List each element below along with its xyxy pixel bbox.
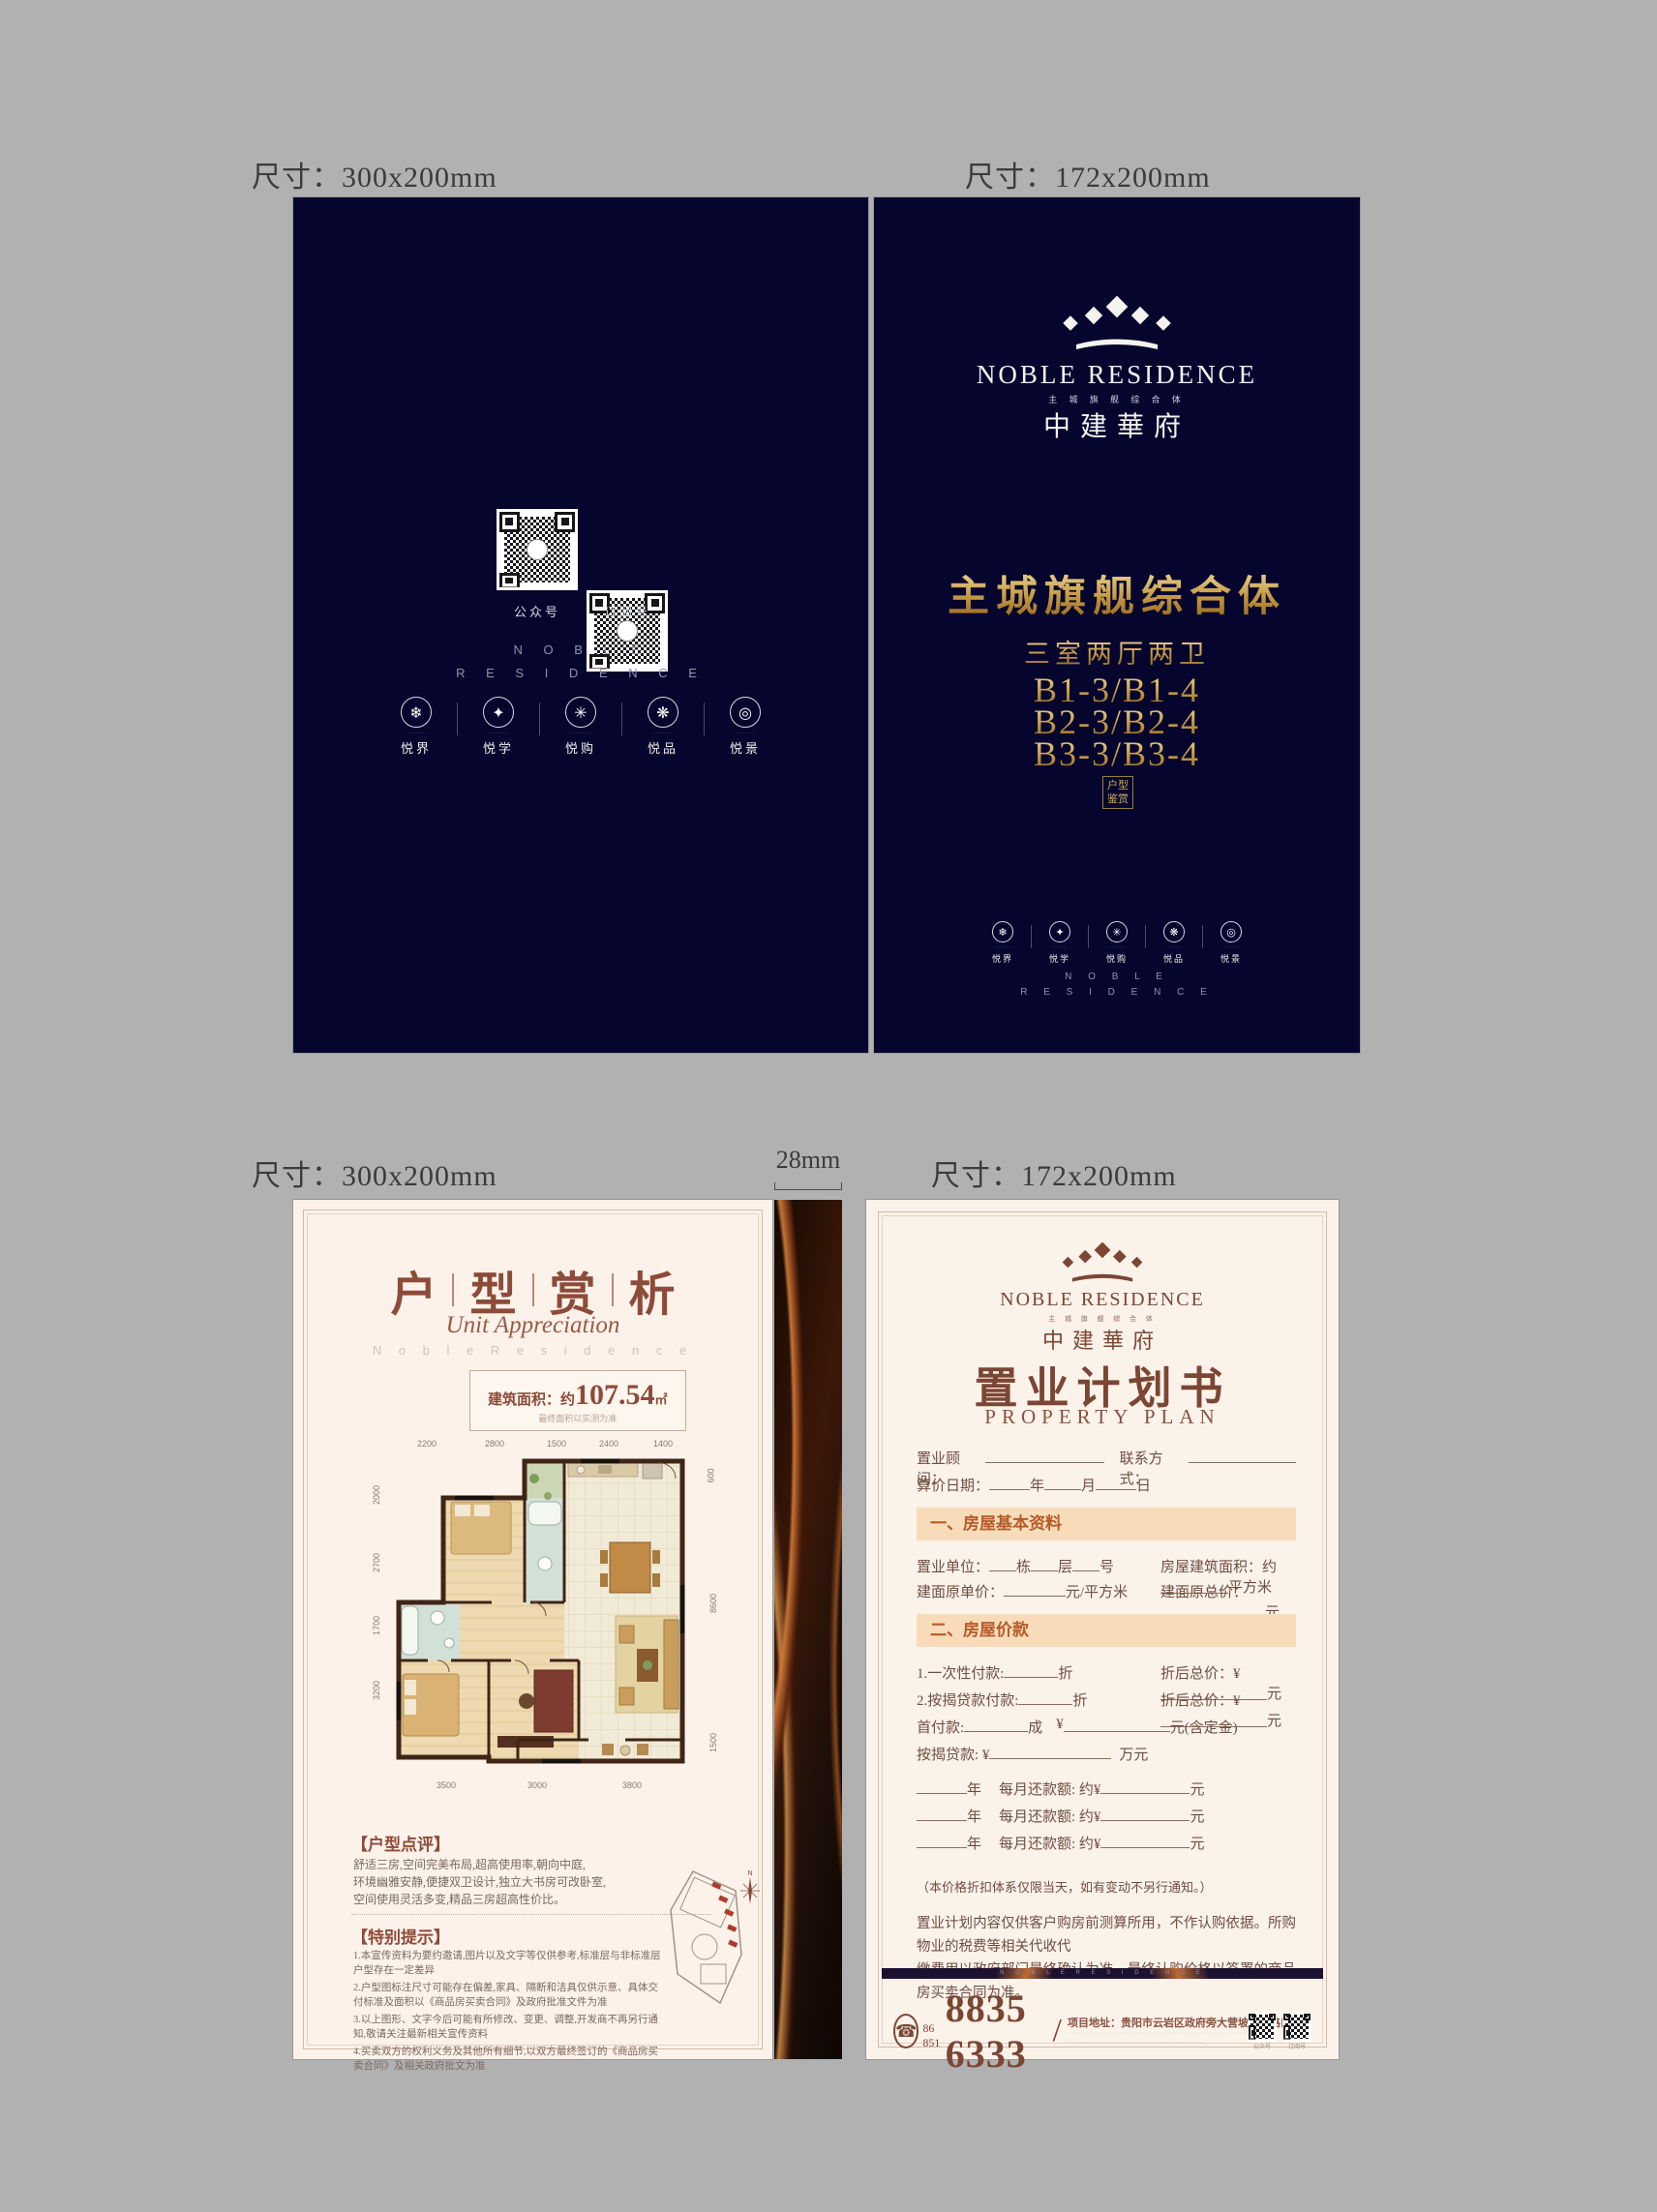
- subscription-qr-code: [1282, 2013, 1311, 2042]
- amenity-caption: ·············: [1052, 946, 1067, 950]
- blank: [989, 1744, 1111, 1759]
- floorplan-page: 户型赏析 Unit Appreciation N o b l e R e s i…: [293, 1200, 772, 2059]
- amenity-label: 悦购: [1106, 952, 1128, 965]
- amenity-caption: ·············: [1223, 946, 1238, 950]
- amenity-world-icon: ❄: [401, 697, 432, 728]
- dong-unit: 栋: [1016, 1556, 1031, 1576]
- dim-label: 3000: [527, 1780, 547, 1790]
- amenity-label: 悦购: [565, 738, 596, 757]
- amenities-row: ❄ ············· 悦界 ✦ ············· 悦学 ✳ …: [293, 697, 868, 757]
- dim-label: 2400: [599, 1439, 618, 1449]
- brand-spaced-line2: R E S I D E N C E: [874, 987, 1360, 998]
- form-row-price: 建面原单价：元/平方米 建面原总价：元: [917, 1581, 1296, 1601]
- amenity-item: ✦ ············· 悦学: [458, 697, 539, 757]
- price-note: （本价格折扣体系仅限当天，如有变动不另行通知。）: [917, 1877, 1213, 1896]
- unit-price-label: 建面原单价：: [917, 1581, 1004, 1601]
- dim-label: 3200: [372, 1681, 381, 1700]
- amenity-learn-icon: ✦: [483, 697, 514, 728]
- year-unit: 年: [967, 1779, 981, 1799]
- footer-brand-band: N O B L E R E S I D E N C E: [882, 1968, 1323, 1979]
- amenity-label: 悦界: [401, 738, 432, 757]
- blank: [1018, 1689, 1072, 1705]
- dim-label: 2000: [372, 1485, 381, 1505]
- slash: /: [1053, 2013, 1062, 2049]
- ceng-unit: 层: [1058, 1556, 1072, 1576]
- project-address: 项目地址：贵阳市云岩区政府旁大营坡常青路口: [1068, 2015, 1240, 2030]
- form-row-pay2: 2.按揭贷款付款:折 折后总价：¥元: [917, 1689, 1296, 1710]
- mortgage-pay-label: 2.按揭贷款付款:: [917, 1689, 1018, 1710]
- divider: [532, 1273, 534, 1306]
- qr-finder-icon: [1283, 2014, 1290, 2020]
- brand-spaced-line1: N O B L E: [874, 971, 1360, 982]
- monthly-repay-label: 每月还款额: 约¥: [999, 1779, 1100, 1799]
- form-row-monthly-1: 年 每月还款额: 约¥元: [917, 1779, 1296, 1799]
- amenity-view-icon: ◎: [1220, 921, 1242, 942]
- blank: [1031, 1556, 1058, 1571]
- amenity-caption: ·············: [571, 732, 589, 736]
- loan-label: 按揭贷款: ¥: [917, 1744, 989, 1764]
- cover-subhead: 三室两厅两卫: [874, 633, 1360, 671]
- qr-finder-icon: [1304, 2014, 1311, 2020]
- review-line: 空间使用灵活多变,精品三房超高性价比。: [353, 1891, 673, 1908]
- spine-dimension-line: [774, 1182, 842, 1190]
- form-row-monthly-3: 年 每月还款额: 约¥元: [917, 1833, 1296, 1853]
- amenity-label: 悦景: [1220, 952, 1242, 965]
- yuan-unit: 元: [1190, 1833, 1204, 1853]
- blank: [1100, 1779, 1190, 1794]
- area-note: 最终面积以实测为准: [488, 1412, 668, 1424]
- stamp-row: 户型: [1105, 779, 1130, 792]
- amenity-learn-icon: ✦: [1049, 921, 1070, 942]
- wan-unit: 万元: [1119, 1744, 1148, 1764]
- cover-headline: 主城旗舰综合体: [874, 563, 1360, 623]
- wechat-official-qr-code: [1248, 2013, 1277, 2042]
- amenity-caption: ·············: [1109, 946, 1124, 950]
- blank: [1100, 1833, 1190, 1848]
- address-block: 项目地址：贵阳市云岩区政府旁大营坡常青路口 ··················…: [1068, 2015, 1240, 2048]
- footer: ☎ 86 851 8835 6333 / 项目地址：贵阳市云岩区政府旁大营坡常青…: [893, 1986, 1311, 2077]
- area-box: 建筑面积：约107.54㎡ 最终面积以实测为准: [469, 1370, 686, 1431]
- amenity-caption: ·············: [736, 732, 754, 736]
- amenity-world-icon: ❄: [992, 921, 1013, 942]
- date-label: 算价日期：: [917, 1475, 989, 1495]
- fold-unit: 折: [1072, 1689, 1087, 1710]
- year-unit: 年: [967, 1806, 981, 1826]
- amenity-caption: ·············: [1166, 946, 1181, 950]
- amenity-item: ◎ ············· 悦景: [1203, 921, 1259, 965]
- qr-center-logo: [617, 620, 638, 642]
- print-proof-sheet: 尺寸：300x200mm 尺寸：172x200mm 公众号 订阅号 N O B …: [0, 0, 1657, 2212]
- property-plan-page: NOBLE RESIDENCE 主 城 旗 舰 综 合 体 中建華府 置业计划书…: [866, 1200, 1339, 2059]
- front-cover-panel: NOBLE RESIDENCE 主 城 旗 舰 综 合 体 中建華府 主城旗舰综…: [874, 197, 1360, 1053]
- amenity-quality-icon: ❋: [648, 697, 678, 728]
- contact-blank: [1189, 1448, 1296, 1463]
- month-blank: [1044, 1475, 1081, 1490]
- qr-label-subscribe: 订阅号: [587, 602, 668, 620]
- unit-label: 置业单位：: [917, 1556, 989, 1576]
- spine-width-label: 28mm: [774, 1146, 842, 1175]
- amenity-label: 悦景: [730, 738, 761, 757]
- amenity-shop-icon: ✳: [1106, 921, 1128, 942]
- brand-spaced-line1: N O B L E: [293, 643, 868, 657]
- brand-tagline: 主 城 旗 舰 综 合 体: [866, 1314, 1339, 1324]
- divider: [452, 1273, 454, 1306]
- notice-title: 【特别提示】: [351, 1924, 450, 1948]
- notice-item: 3.以上图形、文字今后可能有所修改、变更、调整,开发商不再另行通知,敬请关注最新…: [353, 2013, 661, 2042]
- yuan-unit: 元: [1190, 1779, 1204, 1799]
- brand-name-en: NOBLE RESIDENCE: [866, 1289, 1339, 1311]
- form-row-unit: 置业单位： 栋 层 号 房屋建筑面积：约平方米: [917, 1556, 1296, 1576]
- footer-qr-subscribe: 订阅号: [1282, 2013, 1311, 2050]
- qr-label-subscribe: 订阅号: [1282, 2042, 1311, 2050]
- blank: [1004, 1662, 1058, 1678]
- amenity-item: ❋ ············· 悦品: [622, 697, 704, 757]
- discount-total-label: 折后总价：¥: [1160, 1693, 1241, 1709]
- cheng-unit: 成: [1028, 1717, 1042, 1737]
- crown-logo-icon: [1057, 294, 1177, 356]
- wechat-official-qr-code: [497, 509, 578, 590]
- compass-icon: N: [737, 1868, 764, 1906]
- qr-finder-icon: [1283, 2025, 1290, 2040]
- amenity-caption: ·············: [489, 732, 507, 736]
- amenities-row-small: ❄ ············· 悦界 ✦ ············· 悦学 ✳ …: [874, 921, 1360, 965]
- dim-label: 2200: [417, 1439, 437, 1449]
- dim-label: 2800: [485, 1439, 504, 1449]
- monthly-repay-label: 每月还款额: 约¥: [999, 1833, 1100, 1853]
- form-row-date: 算价日期： 年 月 日: [917, 1475, 1296, 1495]
- qr-finder-icon: [1249, 2025, 1255, 2040]
- blank: [1064, 1717, 1170, 1732]
- qr-finder-icon: [1249, 2014, 1255, 2020]
- hao-unit: 号: [1100, 1556, 1114, 1576]
- back-cover-panel: 公众号 订阅号 N O B L E R E S I D E N C E ❄ ··…: [293, 197, 868, 1053]
- divider: [351, 1914, 711, 1915]
- form-row-downpay: 首付款: 成 ¥ 元(含定金): [917, 1717, 1296, 1737]
- year-unit: 年: [1030, 1475, 1044, 1495]
- area-value: 107.54: [575, 1379, 655, 1411]
- area-unit: ㎡: [655, 1392, 668, 1407]
- day-blank: [1096, 1475, 1136, 1490]
- size-label-front-cover: 尺寸：172x200mm: [965, 153, 1211, 195]
- form-row-pay1: 1.一次性付款:折 折后总价：¥元: [917, 1662, 1296, 1683]
- amenity-label: 悦学: [1049, 952, 1070, 965]
- amenity-caption: ·············: [653, 732, 672, 736]
- qr-label-public: 公众号: [497, 602, 578, 620]
- section-basic-info: 一、房屋基本资料: [917, 1508, 1296, 1540]
- year-blank: [989, 1475, 1030, 1490]
- yen-sign: ¥: [1056, 1717, 1064, 1737]
- building-area-label: 房屋建筑面积：约: [1160, 1560, 1277, 1575]
- crown-logo-icon: [1058, 1241, 1147, 1287]
- spine-texture: [774, 1200, 842, 2059]
- total-price-label: 建面原总价：: [1160, 1585, 1248, 1600]
- amenity-shop-icon: ✳: [565, 697, 596, 728]
- amenity-label: 悦品: [1163, 952, 1185, 965]
- blank: [989, 1556, 1016, 1571]
- amenity-item: ✦ ············· 悦学: [1032, 921, 1088, 965]
- amenity-view-icon: ◎: [730, 697, 761, 728]
- brand-spaced-line2: R E S I D E N C E: [293, 666, 868, 680]
- review-line: 舒适三房,空间完美布局,超高使用率,朝向中庭,: [353, 1856, 673, 1873]
- review-lines: 舒适三房,空间完美布局,超高使用率,朝向中庭, 环境幽雅安静,便捷双卫设计,独立…: [353, 1856, 673, 1908]
- notice-item: 2.户型图标注尺寸可能存在偏差,家具、隔断和洁具仅供示意、具体交付标准及面积以《…: [353, 1981, 661, 2010]
- disclaimer-line: 置业计划内容仅供客户购房前测算所用，不作认购依据。所购物业的税费等相关代收代: [917, 1912, 1296, 1958]
- amenity-label: 悦学: [483, 738, 514, 757]
- monthly-repay-label: 每月还款额: 约¥: [999, 1806, 1100, 1826]
- down-payment-label: 首付款:: [917, 1717, 964, 1737]
- blank: [1100, 1806, 1190, 1821]
- amenity-label: 悦界: [992, 952, 1013, 965]
- divider: [612, 1273, 614, 1306]
- discount-total-label: 折后总价：¥: [1160, 1666, 1241, 1682]
- form-row-loan: 按揭贷款: ¥ 万元: [917, 1744, 1296, 1764]
- consultant-blank: [985, 1448, 1104, 1463]
- size-label-back-cover: 尺寸：300x200mm: [252, 153, 497, 195]
- blank: [917, 1779, 967, 1794]
- fine-print-line: ········································…: [1068, 2030, 1240, 2039]
- page-subtitle-en: Unit Appreciation: [293, 1312, 772, 1339]
- brand-spaced-light: N o b l e R e s i d e n c e: [293, 1343, 772, 1358]
- phone-prefix: 86 851: [922, 2021, 941, 2050]
- blank: [964, 1717, 1028, 1732]
- amenity-item: ❋ ············· 悦品: [1146, 921, 1202, 965]
- month-unit: 月: [1081, 1475, 1096, 1495]
- qr-finder-icon: [499, 512, 519, 531]
- blank: [1072, 1556, 1100, 1571]
- qr-center-logo: [527, 539, 548, 560]
- amenity-caption: ·············: [995, 946, 1009, 950]
- footer-qr-public: 公众号: [1248, 2013, 1277, 2050]
- unit-price-unit: 元/平方米: [1066, 1581, 1128, 1601]
- review-title: 【户型点评】: [351, 1831, 450, 1855]
- qr-finder-icon: [499, 573, 519, 587]
- qr-finder-icon: [555, 512, 574, 531]
- day-unit: 日: [1136, 1475, 1151, 1495]
- brand-tagline: 主 城 旗 舰 综 合 体: [874, 393, 1360, 405]
- stamp-row: 鉴赏: [1105, 792, 1130, 806]
- yuan-unit: 元: [1190, 1806, 1204, 1826]
- amenity-caption: ·············: [407, 732, 425, 736]
- brand-name-en: NOBLE RESIDENCE: [874, 360, 1360, 390]
- blank: [917, 1806, 967, 1821]
- section-house-price: 二、房屋价款: [917, 1614, 1296, 1647]
- appreciation-stamp: 户型 鉴赏: [1102, 776, 1133, 809]
- amenity-item: ◎ ············· 悦景: [705, 697, 786, 757]
- size-label-plan-page: 尺寸：172x200mm: [931, 1151, 1177, 1194]
- review-line: 环境幽雅安静,便捷双卫设计,独立大书房可改卧室,: [353, 1873, 673, 1891]
- unit-line: B3-3/B3-4: [874, 733, 1360, 774]
- amenity-item: ❄ ············· 悦界: [975, 921, 1031, 965]
- dim-label: 1400: [653, 1439, 673, 1449]
- area-prefix: 建筑面积：约: [488, 1392, 575, 1408]
- blank: [1004, 1581, 1066, 1597]
- fine-print-line: ········································…: [1068, 2039, 1240, 2048]
- qr-finder-icon: [1269, 2014, 1276, 2020]
- phone-icon: ☎: [893, 2014, 919, 2048]
- amenity-quality-icon: ❋: [1163, 921, 1185, 942]
- brand-name-cn: 中建華府: [866, 1324, 1339, 1355]
- amenity-item: ✳ ············· 悦购: [540, 697, 621, 757]
- dim-label: 3500: [437, 1780, 456, 1790]
- dim-label: 1700: [372, 1616, 381, 1635]
- phone-number: 8835 6333: [946, 1986, 1047, 2077]
- notice-items: 1.本宣传资料为要约邀请,图片以及文字等仅供参考,标准层与非标准层户型存在一定差…: [353, 1949, 661, 2074]
- compass-north-label: N: [747, 1870, 752, 1877]
- page-subtitle-en: PROPERTY PLAN: [866, 1405, 1339, 1429]
- amenity-item: ✳ ············· 悦购: [1089, 921, 1145, 965]
- notice-item: 4.买卖双方的权利义务及其他所有细节,以双方最终签订的《商品房买卖合同》及相关政…: [353, 2045, 661, 2074]
- one-time-pay-label: 1.一次性付款:: [917, 1662, 1004, 1683]
- amenity-item: ❄ ············· 悦界: [376, 697, 457, 757]
- form-row-monthly-2: 年 每月还款额: 约¥元: [917, 1806, 1296, 1826]
- floor-plan-drawing: [387, 1450, 716, 1779]
- size-label-floorplan-page: 尺寸：300x200mm: [252, 1151, 497, 1194]
- amenity-label: 悦品: [648, 738, 678, 757]
- blank: [917, 1833, 967, 1848]
- dim-label: 1500: [547, 1439, 566, 1449]
- fold-unit: 折: [1058, 1662, 1072, 1683]
- brand-name-cn: 中建華府: [874, 405, 1360, 444]
- deposit-suffix: 元(含定金): [1170, 1717, 1238, 1737]
- qr-label-public: 公众号: [1248, 2042, 1277, 2050]
- year-unit: 年: [967, 1833, 981, 1853]
- notice-item: 1.本宣传资料为要约邀请,图片以及文字等仅供参考,标准层与非标准层户型存在一定差…: [353, 1949, 661, 1978]
- dim-label: 2700: [372, 1553, 381, 1572]
- dim-label: 3800: [622, 1780, 642, 1790]
